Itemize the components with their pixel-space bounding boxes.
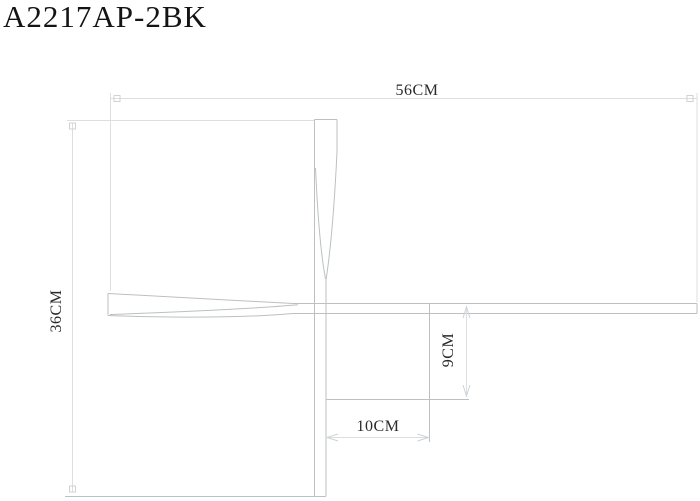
dimension-plate-height: 9CM (440, 306, 470, 397)
dimension-label-overall-width: 56CM (396, 82, 439, 99)
dimension-overall-width: 56CM (111, 82, 698, 302)
vertical-blade-twist-edge (316, 168, 326, 279)
dimension-label-overall-height: 36CM (48, 290, 65, 333)
dimension-label-plate-height: 9CM (440, 333, 457, 367)
dimension-label-plate-width: 10CM (357, 418, 400, 435)
horizontal-arm (108, 294, 697, 318)
vertical-arm-right-edge (326, 120, 337, 497)
technical-drawing: 56CM 36CM 9CM 10CM (0, 0, 700, 501)
horizontal-arm-bottom-edge (108, 314, 697, 318)
horizontal-arm-top-edge (108, 294, 697, 304)
dimension-plate-width: 10CM (326, 418, 430, 441)
horizontal-blade-twist-edge (110, 305, 298, 315)
